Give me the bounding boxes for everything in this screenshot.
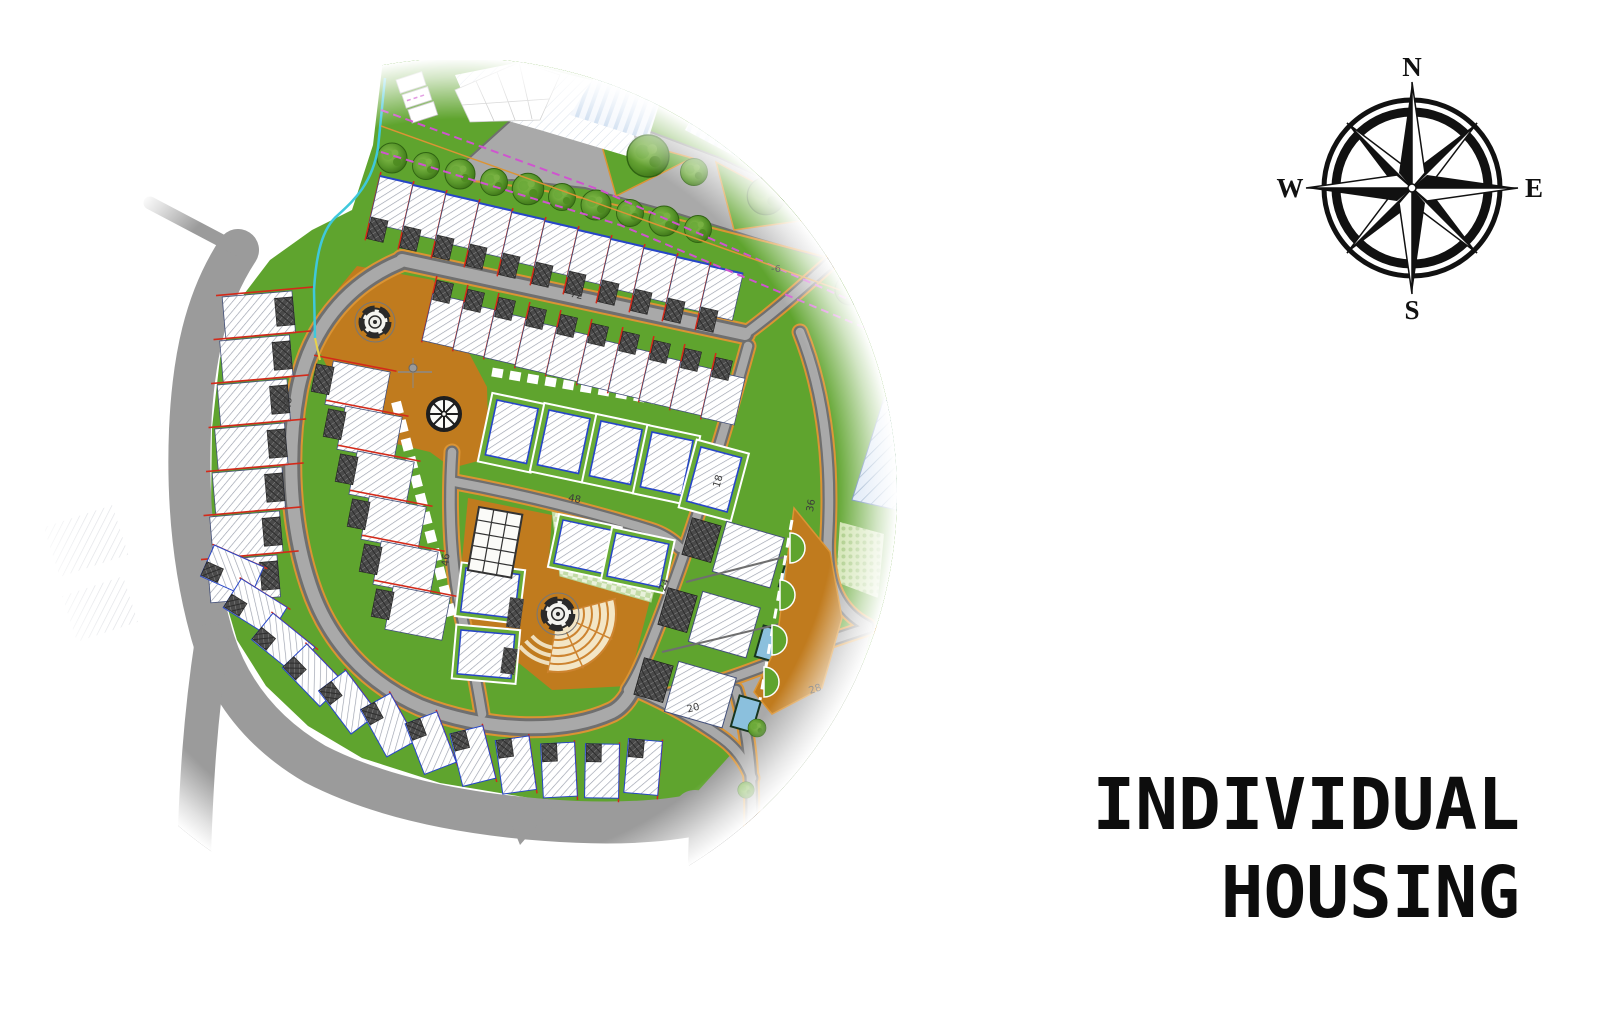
title-line-2: HOUSING <box>1093 849 1520 937</box>
vignette <box>25 58 897 930</box>
title-line-1: INDIVIDUAL <box>1093 761 1520 849</box>
site-plan-illustration: 72 48 48 46 18 24 36 20 28 -6 <box>25 58 906 935</box>
page: 72 48 48 46 18 24 36 20 28 -6 <box>0 0 1599 1030</box>
compass-rose: N S W E <box>1277 52 1544 325</box>
compass-south-label: S <box>1404 295 1419 325</box>
page-title: INDIVIDUAL HOUSING <box>1093 761 1520 937</box>
compass-west-label: W <box>1277 173 1304 203</box>
compass-east-label: E <box>1525 173 1543 203</box>
compass-north-label: N <box>1402 52 1422 82</box>
